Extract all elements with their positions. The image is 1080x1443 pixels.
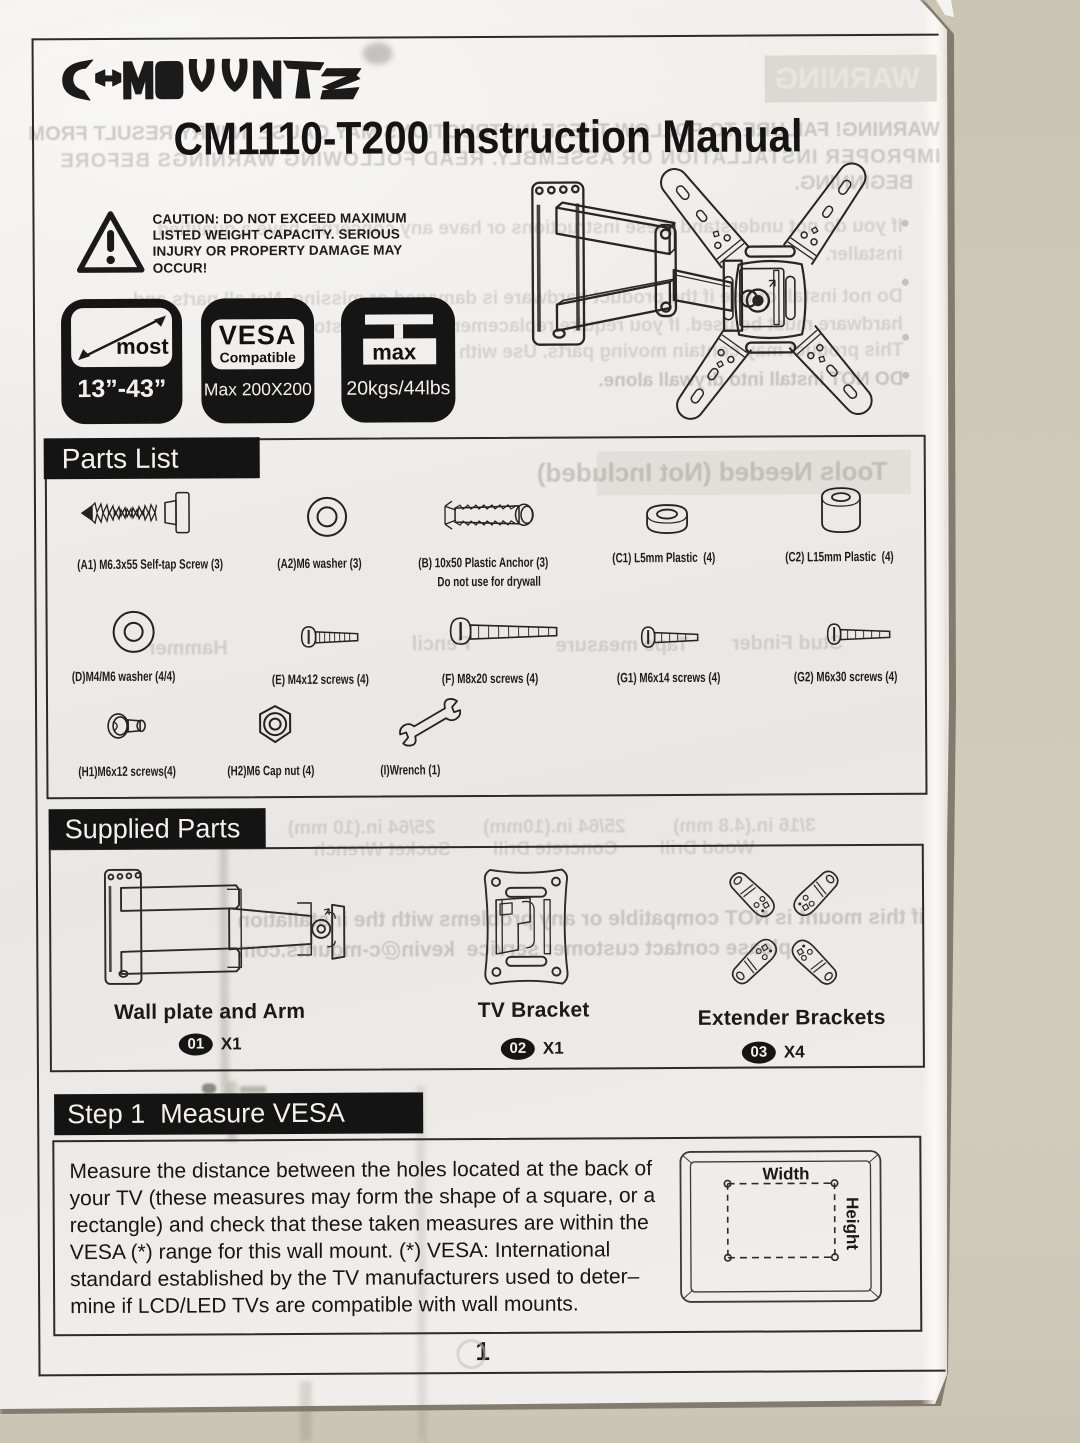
svg-text:Width: Width	[762, 1164, 809, 1183]
svg-text:Height: Height	[843, 1197, 862, 1250]
